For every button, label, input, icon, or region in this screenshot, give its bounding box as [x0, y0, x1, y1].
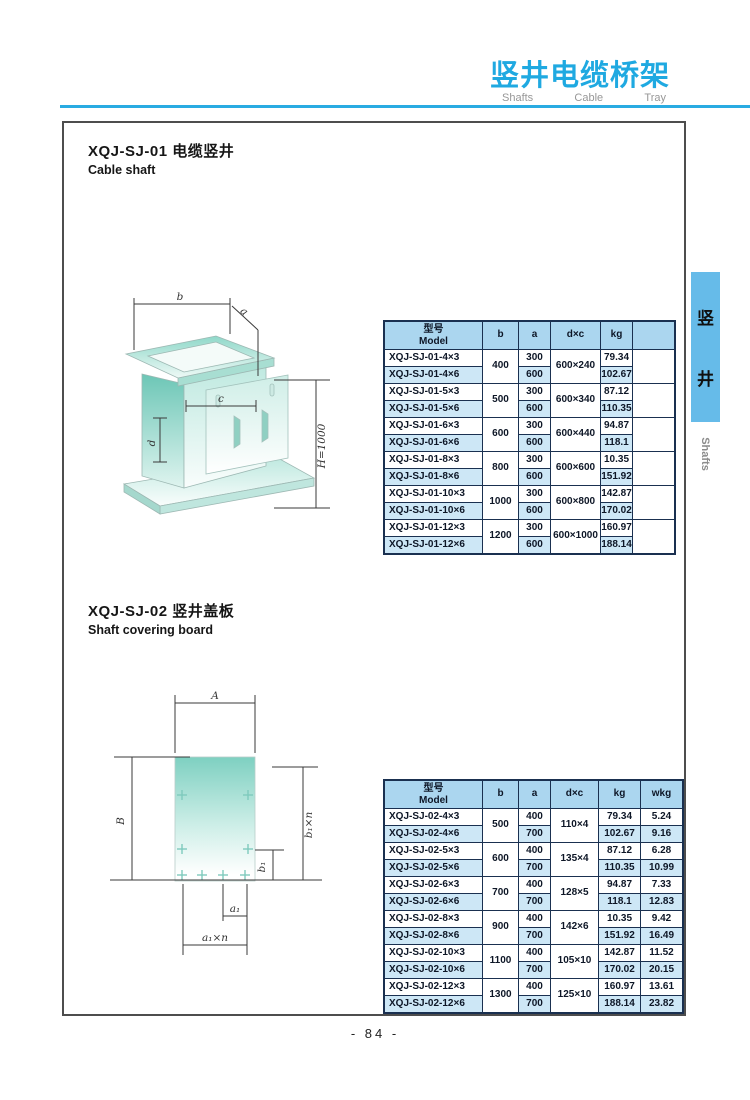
section1-title-en: Cable shaft	[88, 163, 234, 177]
model-header-cn: 型号	[385, 783, 482, 795]
table-row: XQJ-SJ-02-6×6700118.112.83	[384, 894, 683, 911]
cell-a: 600	[519, 435, 551, 452]
cell-b: 500	[483, 384, 519, 418]
dim-label-d: d	[146, 439, 158, 446]
table-row: XQJ-SJ-01-12×6600188.14	[384, 537, 675, 555]
cell-b: 600	[483, 418, 519, 452]
cell-model: XQJ-SJ-01-12×3	[384, 520, 483, 537]
cell-kg: 102.67	[601, 367, 633, 384]
cell-kg: 170.02	[601, 503, 633, 520]
col-header-b: b	[483, 780, 519, 809]
cell-wkg: 9.16	[641, 826, 684, 843]
cell-blank	[633, 486, 676, 520]
cell-b: 400	[483, 350, 519, 384]
cell-blank	[633, 384, 676, 418]
table-row: XQJ-SJ-02-5×3600400135×487.126.28	[384, 843, 683, 860]
cell-dxc: 135×4	[551, 843, 599, 877]
side-tab: 竖 井	[691, 272, 720, 422]
col-header-a: a	[519, 321, 551, 350]
cell-model: XQJ-SJ-01-8×3	[384, 452, 483, 469]
table-row: XQJ-SJ-01-4×6600102.67	[384, 367, 675, 384]
cell-blank	[633, 452, 676, 486]
subtitle-word-tray: Tray	[644, 92, 666, 104]
cell-kg: 188.14	[601, 537, 633, 555]
dim-label-c: c	[218, 393, 224, 405]
cell-kg: 118.1	[599, 894, 641, 911]
col-header-a: a	[519, 780, 551, 809]
page-number: - 84 -	[0, 1026, 750, 1041]
section-title-sj02: XQJ-SJ-02 竖井盖板 Shaft covering board	[88, 600, 234, 637]
cell-a: 400	[519, 809, 551, 826]
cell-model: XQJ-SJ-02-5×3	[384, 843, 483, 860]
table-row: XQJ-SJ-02-4×3500400110×479.345.24	[384, 809, 683, 826]
cell-wkg: 5.24	[641, 809, 684, 826]
col-header-blank	[633, 321, 676, 350]
table-row: XQJ-SJ-01-6×6600118.1	[384, 435, 675, 452]
cell-kg: 188.14	[599, 996, 641, 1014]
cell-model: XQJ-SJ-02-12×6	[384, 996, 483, 1014]
cell-kg: 87.12	[601, 384, 633, 401]
table-row: XQJ-SJ-02-6×3700400128×594.877.33	[384, 877, 683, 894]
model-header-en: Model	[385, 336, 482, 348]
cell-blank	[633, 520, 676, 555]
cell-dxc: 110×4	[551, 809, 599, 843]
cell-kg: 94.87	[601, 418, 633, 435]
cell-a: 400	[519, 877, 551, 894]
cell-a: 600	[519, 537, 551, 555]
model-header-cn: 型号	[385, 324, 482, 336]
cell-model: XQJ-SJ-02-6×3	[384, 877, 483, 894]
cell-dxc: 600×600	[551, 452, 601, 486]
cell-model: XQJ-SJ-02-4×3	[384, 809, 483, 826]
cell-dxc: 105×10	[551, 945, 599, 979]
col-header-kg: kg	[599, 780, 641, 809]
cell-dxc: 142×6	[551, 911, 599, 945]
table-row: XQJ-SJ-01-10×31000300600×800142.87	[384, 486, 675, 503]
cell-model: XQJ-SJ-01-6×6	[384, 435, 483, 452]
cell-kg: 94.87	[599, 877, 641, 894]
cell-wkg: 9.42	[641, 911, 684, 928]
table-row: XQJ-SJ-02-5×6700110.3510.99	[384, 860, 683, 877]
table-row: XQJ-SJ-01-12×31200300600×1000160.97	[384, 520, 675, 537]
cell-wkg: 6.28	[641, 843, 684, 860]
cell-dxc: 600×240	[551, 350, 601, 384]
table-row: XQJ-SJ-01-6×3600300600×44094.87	[384, 418, 675, 435]
cell-a: 300	[519, 350, 551, 367]
cell-b: 1200	[483, 520, 519, 555]
cell-model: XQJ-SJ-02-6×6	[384, 894, 483, 911]
table-row: XQJ-SJ-02-10×31100400105×10142.8711.52	[384, 945, 683, 962]
cell-a: 300	[519, 452, 551, 469]
cell-kg: 79.34	[601, 350, 633, 367]
cover-board	[175, 757, 255, 881]
page-title: 竖井电缆桥架	[490, 52, 670, 94]
cell-wkg: 20.15	[641, 962, 684, 979]
side-tab-en-label: Shafts	[689, 422, 721, 486]
cell-b: 600	[483, 843, 519, 877]
table-row: XQJ-SJ-02-12×6700188.1423.82	[384, 996, 683, 1014]
side-tab-en-text: Shafts	[699, 437, 711, 471]
cell-a: 400	[519, 945, 551, 962]
table-row: XQJ-SJ-02-8×6700151.9216.49	[384, 928, 683, 945]
cell-a: 600	[519, 469, 551, 486]
cell-kg: 151.92	[601, 469, 633, 486]
cell-kg: 160.97	[599, 979, 641, 996]
side-tab-char-1: 竖	[697, 304, 714, 329]
cell-kg: 110.35	[599, 860, 641, 877]
cell-b: 1300	[483, 979, 519, 1014]
cell-a: 300	[519, 384, 551, 401]
dim-label-b1n: b₁×n	[303, 812, 315, 839]
model-header-en: Model	[385, 795, 482, 807]
cell-b: 700	[483, 877, 519, 911]
section-title-sj01: XQJ-SJ-01 电缆竖井 Cable shaft	[88, 140, 234, 177]
dim-label-a1n: a₁×n	[202, 932, 228, 944]
covering-board-drawing: A B b₁×n b₁ a₁ a₁×n	[110, 683, 330, 978]
cell-a: 600	[519, 367, 551, 384]
cell-a: 700	[519, 826, 551, 843]
cell-a: 600	[519, 401, 551, 418]
dim-label-b: b	[177, 291, 184, 303]
subtitle-word-cable: Cable	[574, 92, 603, 104]
cell-model: XQJ-SJ-02-8×6	[384, 928, 483, 945]
cell-model: XQJ-SJ-01-4×3	[384, 350, 483, 367]
col-header-model: 型号Model	[384, 780, 483, 809]
col-header-kg: kg	[601, 321, 633, 350]
door-panel	[206, 375, 288, 474]
cell-a: 600	[519, 503, 551, 520]
page-subtitle: Shafts Cable Tray	[502, 92, 666, 104]
cell-kg: 151.92	[599, 928, 641, 945]
col-header-b: b	[483, 321, 519, 350]
table-row: XQJ-SJ-01-5×6600110.35	[384, 401, 675, 418]
table-row: XQJ-SJ-01-5×3500300600×34087.12	[384, 384, 675, 401]
col-header-model: 型号Model	[384, 321, 483, 350]
table-row: XQJ-SJ-02-8×3900400142×610.359.42	[384, 911, 683, 928]
cell-kg: 118.1	[601, 435, 633, 452]
cell-kg: 142.87	[601, 486, 633, 503]
dim-label-B: B	[115, 817, 127, 826]
cell-a: 400	[519, 911, 551, 928]
cell-kg: 160.97	[601, 520, 633, 537]
cell-model: XQJ-SJ-02-10×3	[384, 945, 483, 962]
cell-b: 1000	[483, 486, 519, 520]
cell-wkg: 13.61	[641, 979, 684, 996]
cell-wkg: 7.33	[641, 877, 684, 894]
cell-dxc: 600×440	[551, 418, 601, 452]
cell-model: XQJ-SJ-01-5×6	[384, 401, 483, 418]
section2-title-cn: XQJ-SJ-02 竖井盖板	[88, 600, 234, 621]
cell-dxc: 600×1000	[551, 520, 601, 555]
cell-model: XQJ-SJ-01-4×6	[384, 367, 483, 384]
table-row: XQJ-SJ-01-4×3400300600×24079.34	[384, 350, 675, 367]
cell-b: 1100	[483, 945, 519, 979]
dim-label-b1: b₁	[256, 862, 268, 873]
section2-title-en: Shaft covering board	[88, 623, 234, 637]
section1-title-cn: XQJ-SJ-01 电缆竖井	[88, 140, 234, 161]
cell-a: 700	[519, 962, 551, 979]
table-row: XQJ-SJ-01-10×6600170.02	[384, 503, 675, 520]
col-header-d×c: d×c	[551, 780, 599, 809]
cell-b: 500	[483, 809, 519, 843]
cell-kg: 110.35	[601, 401, 633, 418]
cell-kg: 87.12	[599, 843, 641, 860]
cell-wkg: 16.49	[641, 928, 684, 945]
side-tab-char-2: 井	[697, 365, 714, 390]
cell-model: XQJ-SJ-02-10×6	[384, 962, 483, 979]
cell-model: XQJ-SJ-01-12×6	[384, 537, 483, 555]
cell-model: XQJ-SJ-01-6×3	[384, 418, 483, 435]
cell-wkg: 11.52	[641, 945, 684, 962]
cell-kg: 79.34	[599, 809, 641, 826]
cell-a: 400	[519, 979, 551, 996]
cell-model: XQJ-SJ-01-10×3	[384, 486, 483, 503]
sj01-spec-table: 型号Modelbad×ckgXQJ-SJ-01-4×3400300600×240…	[383, 320, 676, 555]
cell-blank	[633, 418, 676, 452]
col-header-wkg: wkg	[641, 780, 684, 809]
cell-kg: 170.02	[599, 962, 641, 979]
header-rule	[60, 105, 750, 108]
cell-model: XQJ-SJ-02-4×6	[384, 826, 483, 843]
cell-a: 700	[519, 894, 551, 911]
cell-kg: 102.67	[599, 826, 641, 843]
cell-a: 700	[519, 928, 551, 945]
cell-kg: 10.35	[601, 452, 633, 469]
cell-model: XQJ-SJ-02-12×3	[384, 979, 483, 996]
sj02-spec-table: 型号Modelbad×ckgwkgXQJ-SJ-02-4×3500400110×…	[383, 779, 684, 1014]
header-row: 型号Modelbad×ckgwkg	[384, 780, 683, 809]
table-row: XQJ-SJ-01-8×6600151.92	[384, 469, 675, 486]
cell-dxc: 600×800	[551, 486, 601, 520]
table-row: XQJ-SJ-02-12×31300400125×10160.9713.61	[384, 979, 683, 996]
cell-blank	[633, 350, 676, 384]
table-row: XQJ-SJ-02-10×6700170.0220.15	[384, 962, 683, 979]
cell-model: XQJ-SJ-02-8×3	[384, 911, 483, 928]
cell-a: 400	[519, 843, 551, 860]
cell-model: XQJ-SJ-01-5×3	[384, 384, 483, 401]
cell-kg: 10.35	[599, 911, 641, 928]
cell-model: XQJ-SJ-01-8×6	[384, 469, 483, 486]
catalog-page: 竖井电缆桥架 Shafts Cable Tray 竖 井 Shafts XQJ-…	[0, 0, 750, 1100]
table-row: XQJ-SJ-01-8×3800300600×60010.35	[384, 452, 675, 469]
cell-kg: 142.87	[599, 945, 641, 962]
cell-dxc: 125×10	[551, 979, 599, 1014]
col-header-d×c: d×c	[551, 321, 601, 350]
cell-a: 700	[519, 996, 551, 1014]
cell-b: 900	[483, 911, 519, 945]
cell-model: XQJ-SJ-02-5×6	[384, 860, 483, 877]
dim-label-a1: a₁	[230, 903, 240, 915]
dim-label-A: A	[210, 690, 219, 702]
cell-b: 800	[483, 452, 519, 486]
cell-a: 700	[519, 860, 551, 877]
cell-a: 300	[519, 486, 551, 503]
dim-label-H: H=1000	[316, 423, 328, 469]
cable-shaft-drawing: b a c d H=1000	[118, 278, 348, 528]
cell-wkg: 12.83	[641, 894, 684, 911]
cell-a: 300	[519, 520, 551, 537]
cell-wkg: 10.99	[641, 860, 684, 877]
dim-label-a: a	[238, 305, 251, 318]
header-row: 型号Modelbad×ckg	[384, 321, 675, 350]
cell-model: XQJ-SJ-01-10×6	[384, 503, 483, 520]
subtitle-word-shafts: Shafts	[502, 92, 533, 104]
cell-dxc: 128×5	[551, 877, 599, 911]
cell-dxc: 600×340	[551, 384, 601, 418]
table-row: XQJ-SJ-02-4×6700102.679.16	[384, 826, 683, 843]
cell-wkg: 23.82	[641, 996, 684, 1014]
cell-a: 300	[519, 418, 551, 435]
